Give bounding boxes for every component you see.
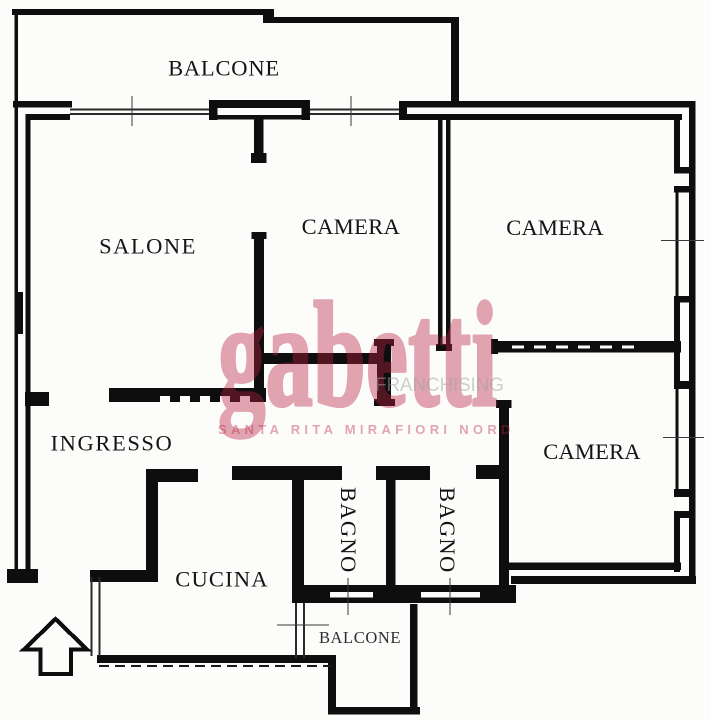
svg-text:gabetti: gabetti	[218, 272, 498, 438]
svg-text:BALCONE: BALCONE	[319, 628, 401, 647]
svg-text:BALCONE: BALCONE	[168, 56, 280, 81]
svg-text:CUCINA: CUCINA	[175, 567, 268, 592]
svg-text:CAMERA: CAMERA	[302, 214, 401, 239]
svg-text:FRANCHISING: FRANCHISING	[375, 375, 504, 396]
svg-text:CAMERA: CAMERA	[543, 439, 641, 464]
svg-text:BAGNO: BAGNO	[336, 487, 361, 574]
svg-text:BAGNO: BAGNO	[435, 487, 460, 574]
svg-text:SANTA RITA MIRAFIORI NORD: SANTA RITA MIRAFIORI NORD	[218, 422, 515, 437]
svg-text:SALONE: SALONE	[99, 234, 197, 259]
svg-text:INGRESSO: INGRESSO	[51, 431, 174, 456]
svg-text:CAMERA: CAMERA	[506, 215, 604, 240]
